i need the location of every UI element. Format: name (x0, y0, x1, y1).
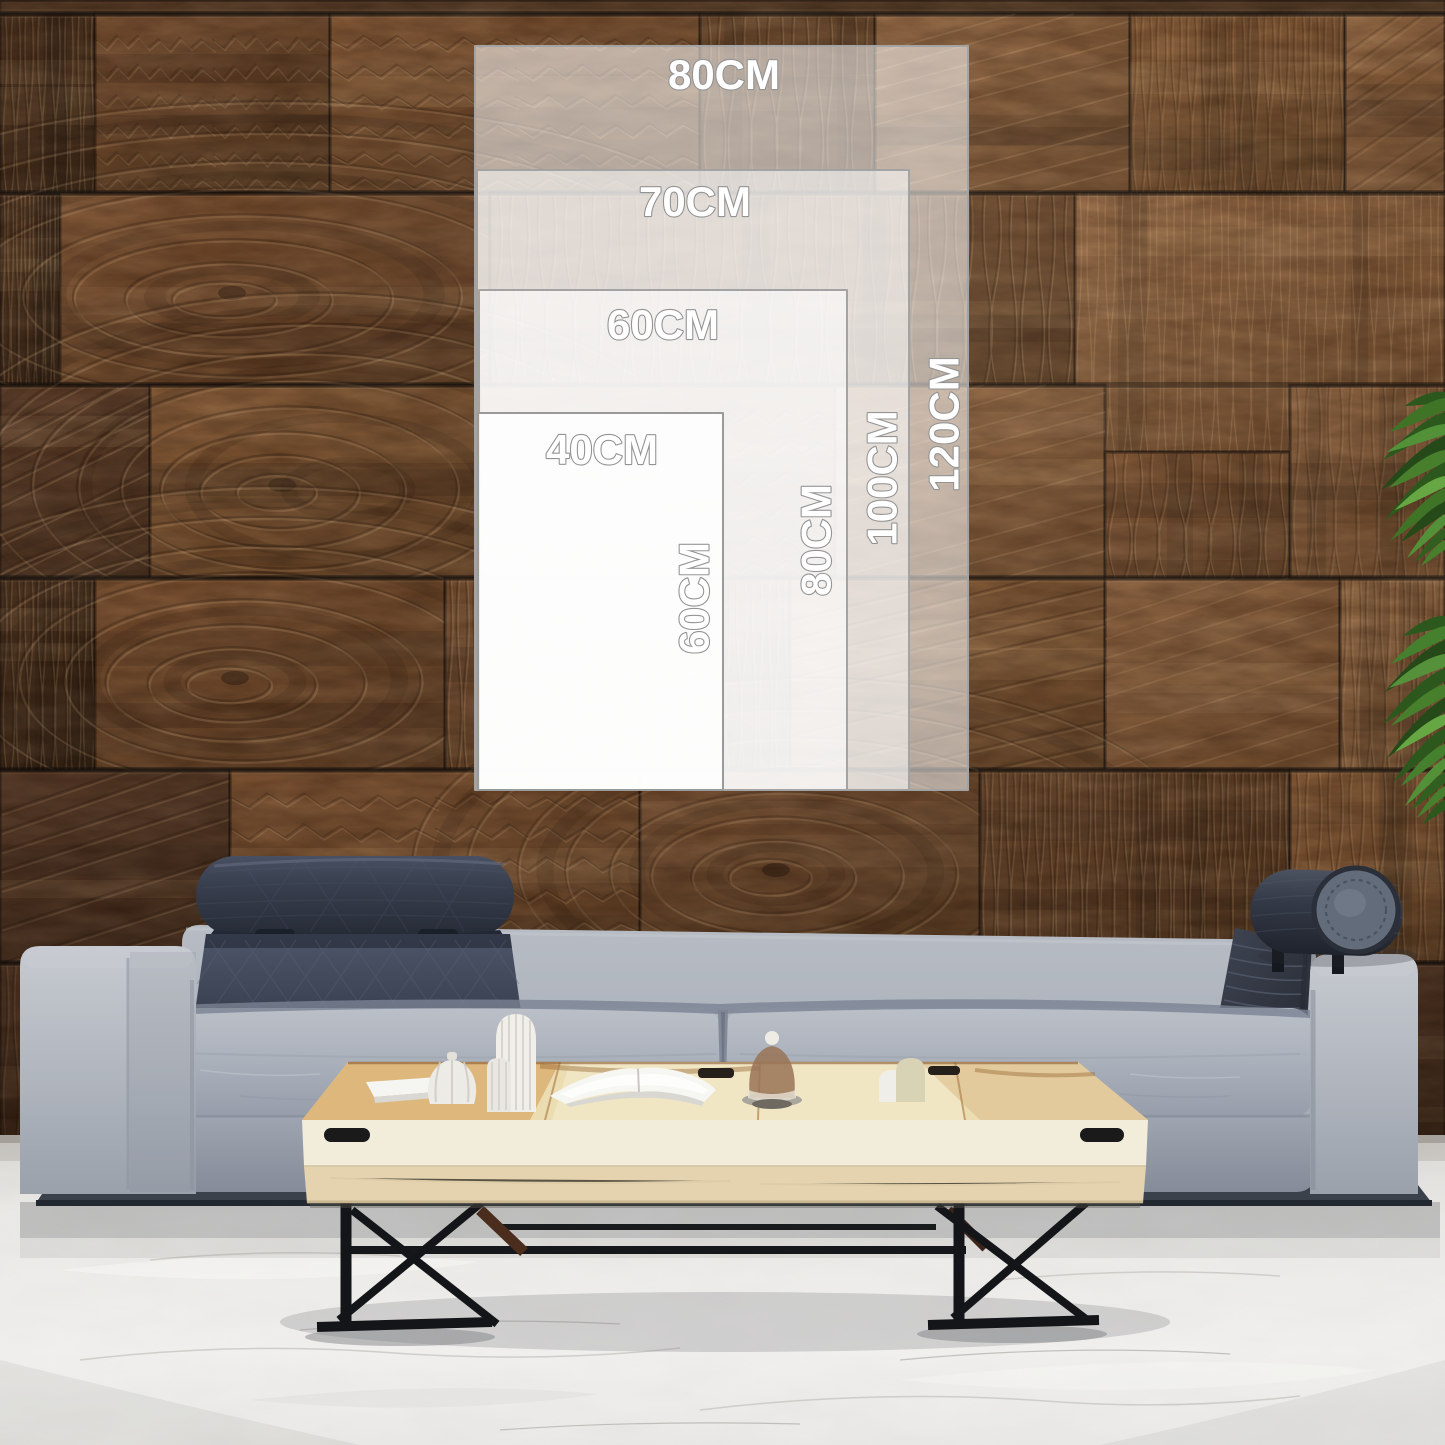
svg-text:120CM: 120CM (921, 356, 968, 491)
svg-text:60CM: 60CM (671, 542, 718, 654)
svg-text:80CM: 80CM (793, 484, 840, 596)
svg-text:60CM: 60CM (607, 301, 719, 348)
svg-text:70CM: 70CM (639, 178, 751, 225)
svg-text:100CM: 100CM (859, 410, 906, 545)
svg-text:40CM: 40CM (546, 426, 658, 473)
svg-text:80CM: 80CM (668, 51, 780, 98)
